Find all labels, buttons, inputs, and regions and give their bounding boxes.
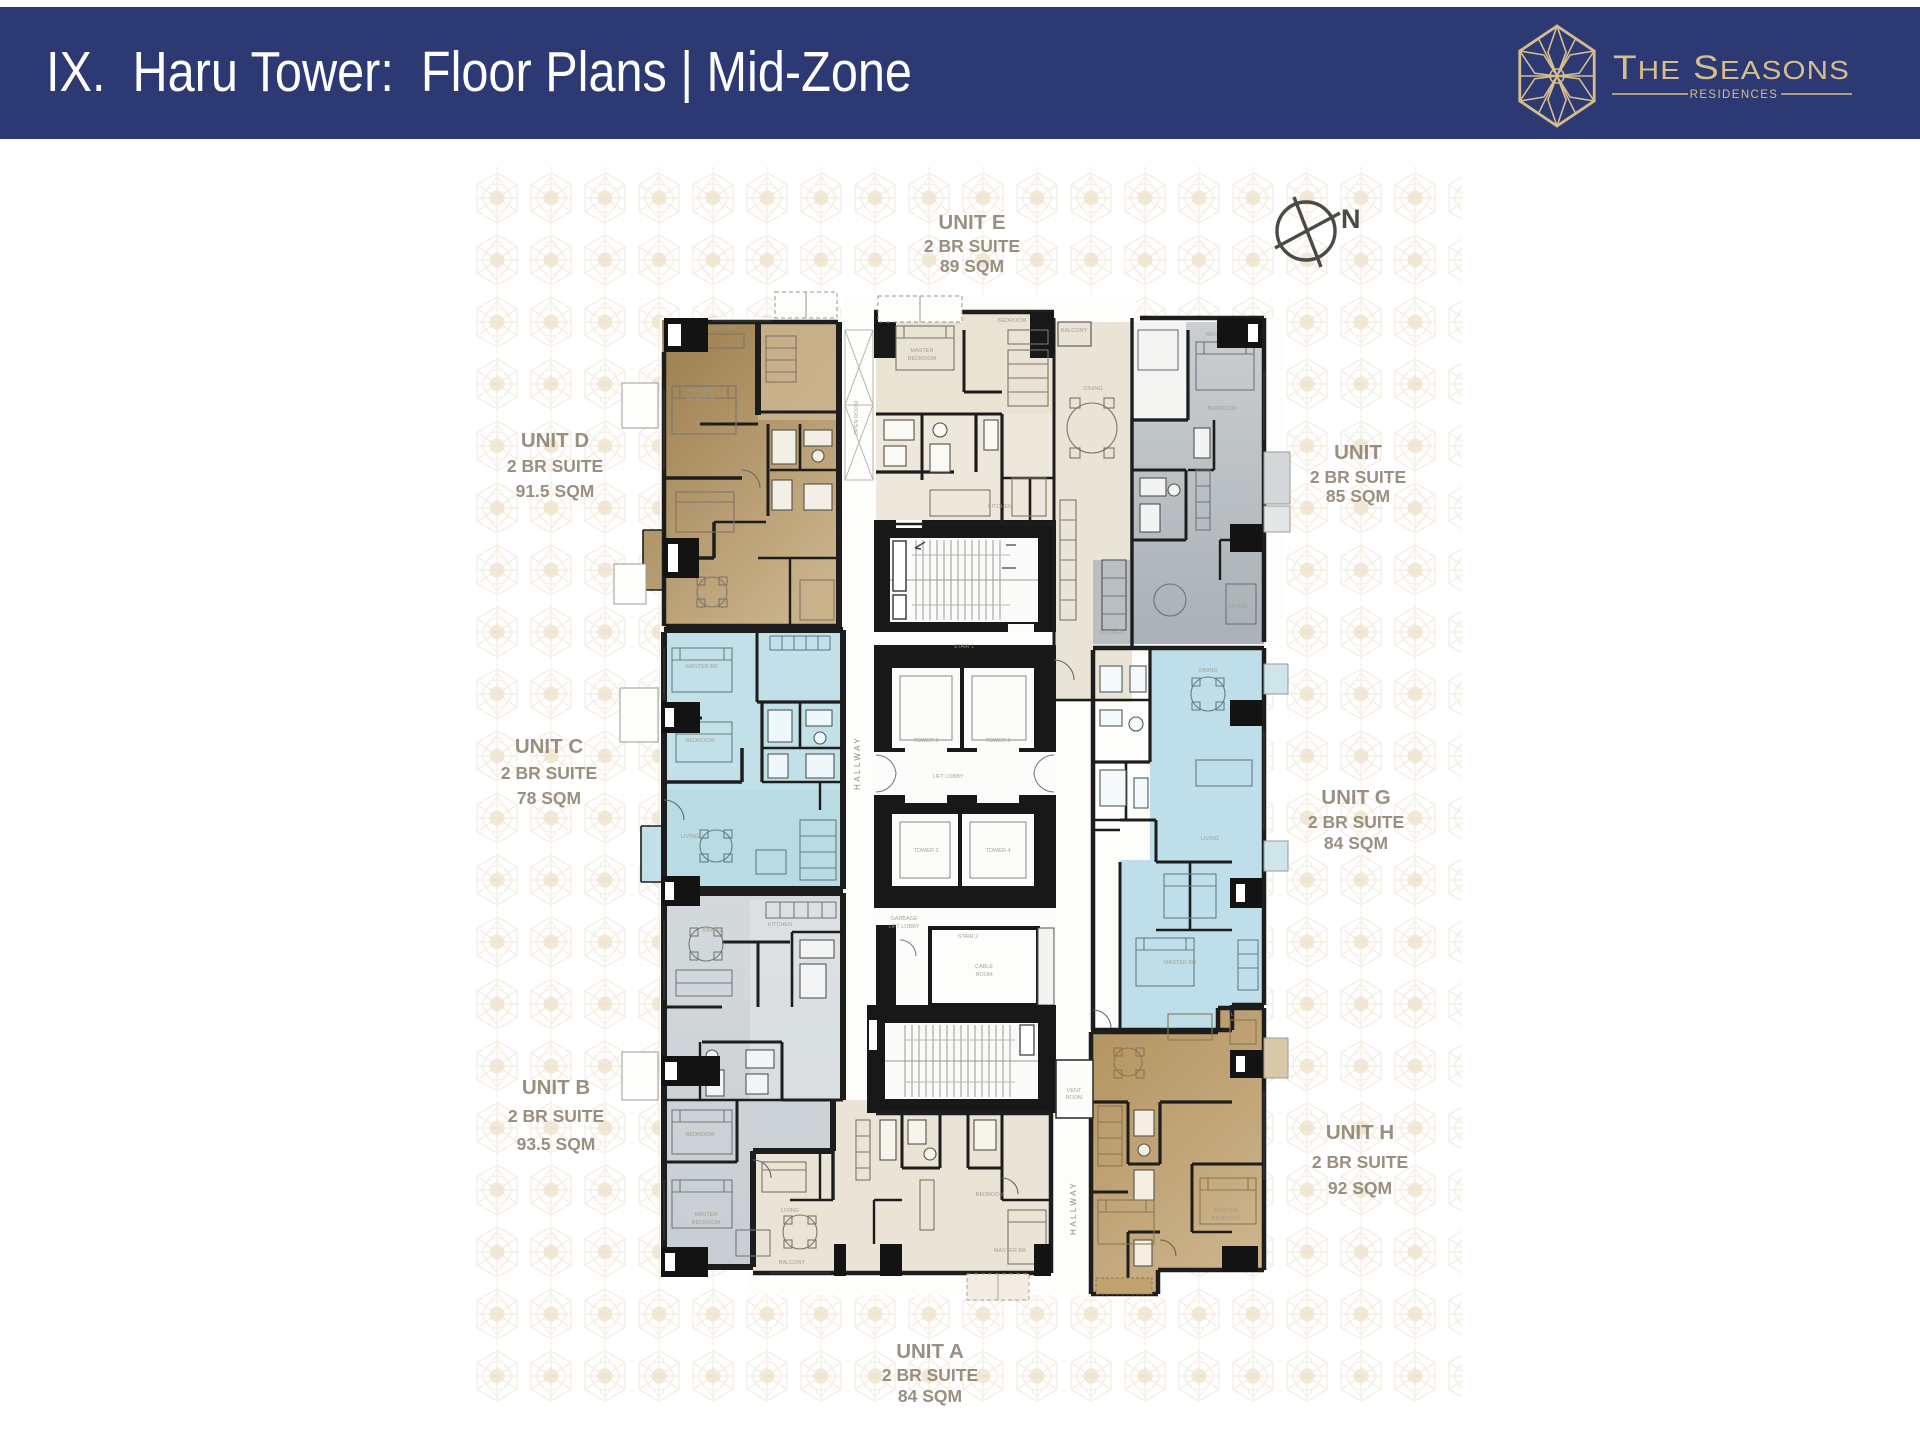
svg-text:TOWER 2: TOWER 2 (914, 738, 939, 744)
svg-text:UNIT G: UNIT G (1321, 786, 1390, 809)
svg-text:DINING: DINING (1198, 668, 1217, 674)
svg-text:ROOM: ROOM (1065, 1095, 1083, 1101)
svg-text:TOWER 4: TOWER 4 (986, 848, 1011, 854)
svg-text:92 SQM: 92 SQM (1328, 1178, 1392, 1198)
svg-text:BEDROOM: BEDROOM (998, 318, 1027, 324)
svg-text:BEDROOM: BEDROOM (908, 356, 937, 362)
svg-text:CABLE: CABLE (975, 964, 993, 970)
svg-text:BALCONY: BALCONY (779, 1260, 806, 1266)
svg-text:MASTER: MASTER (1215, 1208, 1238, 1214)
svg-text:MASTER: MASTER (689, 388, 712, 394)
svg-text:KITCHEN: KITCHEN (768, 922, 792, 928)
svg-text:93.5 SQM: 93.5 SQM (517, 1134, 596, 1154)
svg-text:KITCHEN: KITCHEN (988, 504, 1012, 510)
svg-text:BEDROOM: BEDROOM (976, 1192, 1005, 1198)
svg-text:BEDROOM: BEDROOM (686, 1132, 715, 1138)
svg-text:KITCHEN: KITCHEN (1100, 630, 1124, 636)
svg-text:2 BR SUITE: 2 BR SUITE (501, 763, 597, 783)
svg-text:LIFT LOBBY: LIFT LOBBY (932, 774, 963, 780)
svg-text:84 SQM: 84 SQM (1324, 833, 1388, 853)
svg-text:DINING: DINING (1118, 1040, 1137, 1046)
svg-text:2 BR SUITE: 2 BR SUITE (1312, 1152, 1408, 1172)
svg-text:85 SQM: 85 SQM (1326, 486, 1390, 506)
svg-text:BEDROOM: BEDROOM (686, 738, 715, 744)
svg-text:MASTER BR: MASTER BR (686, 664, 718, 670)
svg-text:84 SQM: 84 SQM (898, 1386, 962, 1406)
svg-text:2 BR SUITE: 2 BR SUITE (507, 456, 603, 476)
svg-text:RESIDENCES: RESIDENCES (1690, 89, 1779, 101)
svg-text:MASTER BR: MASTER BR (1164, 960, 1196, 966)
svg-text:OPEN ROOM: OPEN ROOM (854, 400, 860, 435)
svg-text:UNIT A: UNIT A (896, 1340, 964, 1363)
svg-text:HALLWAY: HALLWAY (1069, 1181, 1078, 1235)
svg-text:2 BR SUITE: 2 BR SUITE (508, 1106, 604, 1126)
svg-text:2 BR SUITE: 2 BR SUITE (1308, 812, 1404, 832)
svg-text:BEDROOM: BEDROOM (1212, 1216, 1241, 1222)
svg-text:MASTER: MASTER (695, 1212, 718, 1218)
svg-text:78 SQM: 78 SQM (517, 788, 581, 808)
svg-text:UNIT E: UNIT E (938, 211, 1005, 234)
svg-text:N: N (1341, 204, 1361, 234)
svg-text:LIVING: LIVING (1231, 1012, 1249, 1018)
svg-text:HALLWAY: HALLWAY (853, 736, 862, 790)
svg-text:STAIR 2: STAIR 2 (958, 934, 978, 940)
svg-text:2 BR SUITE: 2 BR SUITE (924, 236, 1020, 256)
svg-text:UNIT C: UNIT C (515, 735, 584, 758)
svg-text:BEDROOM: BEDROOM (686, 396, 715, 402)
svg-text:ROOM: ROOM (975, 972, 993, 978)
svg-text:DINING: DINING (702, 928, 721, 934)
svg-text:BEDROOM: BEDROOM (692, 1220, 721, 1226)
svg-text:STAIR 1: STAIR 1 (954, 644, 974, 650)
svg-text:TOWER 3: TOWER 3 (914, 848, 939, 854)
svg-text:GARBAGE: GARBAGE (890, 916, 918, 922)
svg-text:UNIT H: UNIT H (1326, 1121, 1394, 1144)
svg-text:BALCONY: BALCONY (711, 326, 738, 332)
svg-text:91.5 SQM: 91.5 SQM (516, 481, 595, 501)
svg-text:LIVING: LIVING (1229, 604, 1247, 610)
svg-text:THE SEASONS: THE SEASONS (1613, 49, 1850, 87)
svg-text:2 BR SUITE: 2 BR SUITE (1310, 467, 1406, 487)
svg-text:IX. Haru Tower: Floor Plans: IX. Haru Tower: Floor Plans | Mid-Zone (46, 40, 912, 104)
svg-text:LIVING: LIVING (681, 834, 699, 840)
svg-text:LIVING: LIVING (781, 1208, 799, 1214)
svg-text:BEDROOM: BEDROOM (1208, 406, 1237, 412)
svg-text:MASTER: MASTER (911, 348, 934, 354)
svg-text:UNIT: UNIT (1334, 441, 1382, 464)
svg-text:LIVING: LIVING (1201, 836, 1219, 842)
svg-text:BALCONY: BALCONY (1061, 328, 1088, 334)
svg-text:VENT: VENT (1067, 1088, 1082, 1094)
svg-text:89 SQM: 89 SQM (940, 256, 1004, 276)
svg-text:UNIT B: UNIT B (522, 1076, 590, 1099)
svg-text:MASTER BR: MASTER BR (994, 1248, 1026, 1254)
svg-text:TOWER 1: TOWER 1 (986, 738, 1011, 744)
svg-text:BEDROOM: BEDROOM (684, 506, 713, 512)
svg-text:2 BR SUITE: 2 BR SUITE (882, 1365, 978, 1385)
svg-text:UNIT D: UNIT D (521, 429, 589, 452)
svg-text:LIFT LOBBY: LIFT LOBBY (888, 924, 919, 930)
svg-text:DINING: DINING (1083, 386, 1102, 392)
